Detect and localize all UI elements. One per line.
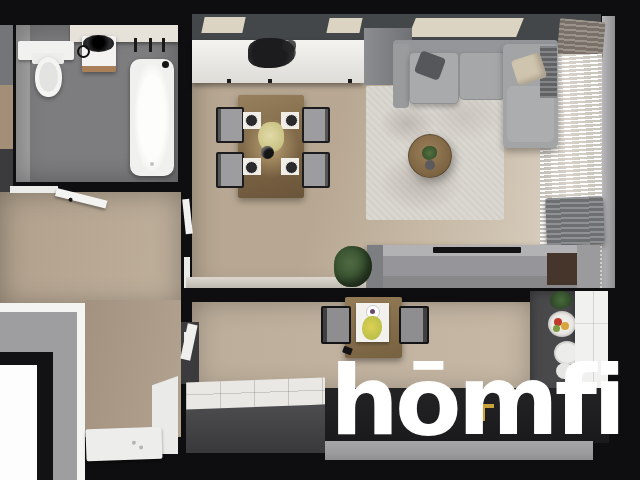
homfi-logo: hōmfi [330, 352, 622, 449]
faucet-icon [134, 38, 137, 52]
vase [425, 160, 435, 170]
plate [285, 114, 298, 127]
tv-screen [433, 247, 521, 253]
ceiling-light-panel [408, 18, 524, 37]
bathtub-basin [135, 64, 169, 171]
pendant-lamp [261, 146, 274, 159]
flower-tray [356, 303, 389, 342]
drain-icon [132, 441, 136, 445]
ceiling-light-panel [326, 18, 362, 33]
kitchen-chair [321, 306, 351, 344]
faucet-icon [149, 38, 152, 52]
homfi-logo-text: hōmfi [330, 344, 622, 457]
toilet-seat [39, 62, 58, 92]
shower-tray [85, 427, 162, 462]
hook-icon [348, 79, 352, 83]
place-setting [243, 112, 261, 129]
apartment-render: hōmfi [0, 0, 640, 480]
faucet-icon [162, 38, 165, 52]
fruit-bowl [548, 311, 576, 337]
ceiling-light-panel [201, 17, 245, 33]
drain-icon [150, 162, 154, 166]
herb-plant [550, 291, 572, 309]
plant-branch [282, 40, 296, 52]
place-setting [281, 112, 299, 129]
hook-icon [268, 79, 272, 83]
dining-chair [302, 107, 330, 143]
dining-chair [216, 107, 244, 143]
tiled-counter-front [186, 405, 325, 453]
bathtub [130, 59, 174, 176]
shower-fixture-icon [162, 61, 169, 68]
armchair [545, 196, 605, 246]
coffee-table [408, 134, 452, 178]
sofa-seat [459, 52, 505, 100]
yellow-flowers [362, 316, 382, 340]
plate-dot [370, 309, 375, 314]
toilet [35, 57, 62, 97]
fruit-green [553, 325, 560, 332]
sideboard-brown-panel [547, 253, 577, 285]
hallway-floor [0, 192, 181, 307]
outside-wall-cut [0, 25, 13, 192]
plate [245, 114, 258, 127]
place-setting [281, 158, 299, 175]
tiled-counter-top [186, 378, 325, 410]
place-setting [243, 158, 261, 175]
bathroom [16, 25, 178, 182]
entry-step-white-center [0, 365, 37, 480]
potted-plant [422, 146, 437, 160]
dining-chair [216, 152, 244, 188]
kitchen-chair [399, 306, 429, 344]
right-window-wall [602, 16, 615, 302]
dining-chair [302, 152, 330, 188]
fruit-yellow [561, 322, 569, 330]
sofa-armrest [393, 44, 409, 108]
door-lintel [10, 186, 58, 193]
drain-icon [139, 445, 143, 449]
towel-ring-icon [77, 45, 90, 58]
plate [245, 161, 258, 174]
plate [285, 161, 298, 174]
hook-icon [227, 79, 231, 83]
